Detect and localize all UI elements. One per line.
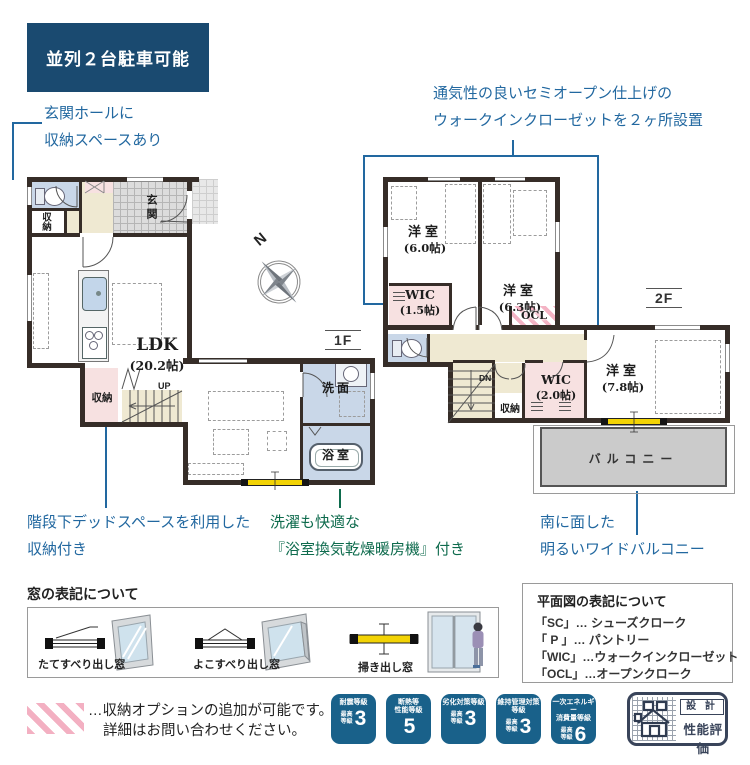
window-legend-box: たてすべり出し窓 よこすべり出し窓	[27, 607, 499, 678]
window-marker	[27, 187, 32, 205]
leader-entrance-h	[12, 122, 42, 124]
annotation-wic: 通気性の良いセミオープン仕上げの ウォークインクローゼットを２ヶ所設置	[433, 80, 703, 134]
window-cap	[302, 479, 309, 486]
leader-balcony	[636, 491, 638, 535]
burner-icon	[94, 331, 103, 340]
sweep-out-window-icon	[348, 622, 420, 656]
badge-deterioration-grade: 劣化対策等級 最高等級3	[441, 694, 486, 744]
wall	[187, 177, 192, 191]
wall	[383, 177, 560, 182]
badge-energy-grade: 一次エネルギー消費量等級 最高等級6	[551, 694, 596, 744]
window-cap	[601, 418, 608, 425]
faucet-icon	[96, 291, 101, 296]
chair-outline	[267, 431, 287, 451]
plan-legend-item: 「OCL」…オープンクローク	[535, 665, 692, 682]
sliding-door-illustration	[426, 610, 490, 674]
wall	[27, 233, 80, 237]
bathroom-label: 浴室	[315, 446, 359, 463]
washroom-label: 洗面	[315, 379, 359, 396]
bedroom1-label: 洋室 (6.0帖)	[390, 221, 460, 256]
window-marker	[383, 227, 388, 257]
window-marker	[27, 275, 32, 321]
leader-bathroom	[339, 489, 341, 508]
hanger-pipe-icon	[559, 402, 571, 411]
closet-front-2f	[495, 363, 525, 393]
storage-option-hatch-swatch	[27, 703, 84, 734]
annotation-stair-storage: 階段下デッドスペースを利用した 収納付き	[27, 509, 250, 563]
window-marker	[428, 177, 460, 181]
wall	[525, 360, 543, 363]
table-outline	[213, 429, 249, 455]
wall	[27, 177, 32, 368]
plan-legend-item: 「WIC」…ウォークインクローゼット	[535, 648, 738, 665]
closet-outline	[391, 186, 417, 220]
entry-storage-label: 収納	[38, 212, 52, 231]
plan-legend-title: 平面図の表記について	[537, 591, 667, 610]
ldk-label: LDK (20.2帖)	[112, 335, 202, 374]
burner-icon	[89, 341, 98, 350]
sweep-out-window-1f	[247, 479, 303, 486]
house-icon	[632, 697, 676, 741]
cert-subtitle: 性能評価	[678, 719, 728, 757]
ocl-label: OCL	[516, 309, 552, 322]
wall	[31, 208, 79, 211]
plan-legend-item: 「 P 」… パントリー	[535, 631, 649, 648]
wall	[389, 283, 452, 286]
stairs-1f	[122, 390, 182, 422]
parking-banner-label: 並列２台駐車可能	[46, 45, 190, 70]
parking-banner: 並列２台駐車可能	[27, 23, 209, 92]
wall	[383, 177, 388, 362]
wall	[64, 211, 67, 233]
window-marker	[495, 177, 525, 181]
balcony-label: バルコニー	[540, 450, 727, 467]
wall	[448, 362, 453, 423]
under-stair-storage-label: 収納	[87, 390, 117, 405]
wall	[478, 182, 482, 325]
wall	[300, 397, 303, 484]
design-performance-mark: 設 計 性能評価	[627, 692, 728, 746]
cupboard-outline	[33, 273, 49, 349]
option-note-line2: 詳細はお問い合わせください。	[103, 719, 306, 740]
wic1-label: WIC (1.5帖)	[392, 287, 448, 318]
desk-outline	[513, 190, 547, 236]
wall	[555, 177, 560, 330]
wall	[584, 330, 587, 340]
wall	[300, 364, 303, 372]
wall	[383, 325, 453, 330]
window-legend-item-label: よこすべり出し窓	[193, 656, 280, 672]
dn-label: DN	[479, 373, 491, 383]
annotation-balcony: 南に面した 明るいワイドバルコニー	[540, 509, 705, 563]
annotation-bathroom: 洗濯も快適な 『浴室換気乾燥暖房機』付き	[270, 509, 465, 563]
wall	[79, 181, 82, 233]
window-marker	[199, 359, 247, 363]
wall	[27, 177, 199, 182]
window-marker	[127, 177, 163, 182]
wall	[427, 334, 430, 362]
window-marker	[370, 373, 375, 399]
window-marker	[725, 344, 730, 372]
wall	[80, 422, 187, 427]
compass-icon: N	[246, 226, 310, 318]
plan-legend-item: 「SC」… シューズクローク	[535, 614, 686, 631]
floor-plan-flyer: 並列２台駐車可能 玄関ホールに 収納スペースあり 通気性の良いセミオープン仕上げ…	[0, 0, 750, 765]
window-cap	[241, 479, 248, 486]
sweep-out-window-2f	[607, 418, 661, 425]
svg-text:N: N	[251, 230, 270, 250]
badge-insulation-grade: 断熱等性能等級 5	[386, 694, 431, 744]
window-marker	[555, 222, 560, 252]
stairs-2f	[448, 363, 495, 423]
floor-tag-1f: 1F	[325, 330, 361, 350]
up-label: UP	[158, 381, 171, 391]
wall	[113, 233, 192, 237]
wall	[448, 418, 730, 423]
window-legend-item-label: たてすべり出し窓	[38, 656, 125, 672]
cert-grid-background	[632, 697, 676, 741]
plan-legend-box: 平面図の表記について 「SC」… シューズクローク 「 P 」… パントリー 「…	[522, 583, 733, 683]
wall	[303, 423, 370, 426]
cert-title: 設 計	[680, 699, 724, 715]
bedroom3-label: 洋室 (7.8帖)	[578, 360, 668, 395]
wall	[453, 360, 495, 363]
wall	[27, 363, 85, 368]
leader-wic-h	[363, 155, 599, 157]
badge-maintenance-grade: 維持管理対策等級 最高等級3	[496, 694, 541, 744]
hanger-pipe-icon	[531, 402, 543, 411]
bed-outline	[483, 184, 511, 244]
wall	[80, 363, 85, 427]
burner-icon	[85, 331, 94, 340]
floor-plan-1f: 玄関 収納 LDK (20.2帖) 収納 UP 洗面 浴室	[27, 177, 375, 490]
kitchen-sink	[82, 277, 107, 311]
tv-board-outline	[188, 463, 244, 475]
vertical-slide-window-icon	[44, 624, 106, 654]
annotation-entrance-storage: 玄関ホールに 収納スペースあり	[44, 100, 162, 154]
badge-seismic-grade: 耐震等級 最高等級3	[331, 694, 376, 744]
wall	[183, 422, 188, 485]
window-legend-title: 窓の表記について	[27, 584, 139, 604]
leader-entrance-v	[12, 122, 14, 180]
floor-plan-2f: 洋室 (6.0帖) 洋室 (6.3帖) WIC (1.5帖) OCL DN 収納…	[383, 172, 735, 494]
sofa-outline	[208, 391, 284, 421]
genkan-label: 玄関	[143, 194, 159, 222]
entrance-porch	[192, 179, 218, 224]
window-legend-item-label: 掃き出し窓	[358, 659, 413, 675]
wall	[476, 325, 479, 330]
wall	[449, 283, 452, 329]
window-cap	[660, 418, 667, 425]
horizontal-slide-window-icon	[194, 624, 256, 654]
window-marker	[655, 325, 700, 330]
storage-2f-label: 収納	[495, 400, 525, 415]
option-note-line1: …収納オプションの追加が可能です。	[88, 699, 333, 720]
hall-2f	[430, 334, 587, 362]
wall	[383, 362, 448, 367]
wic2-label: WIC (2.0帖)	[530, 372, 582, 403]
